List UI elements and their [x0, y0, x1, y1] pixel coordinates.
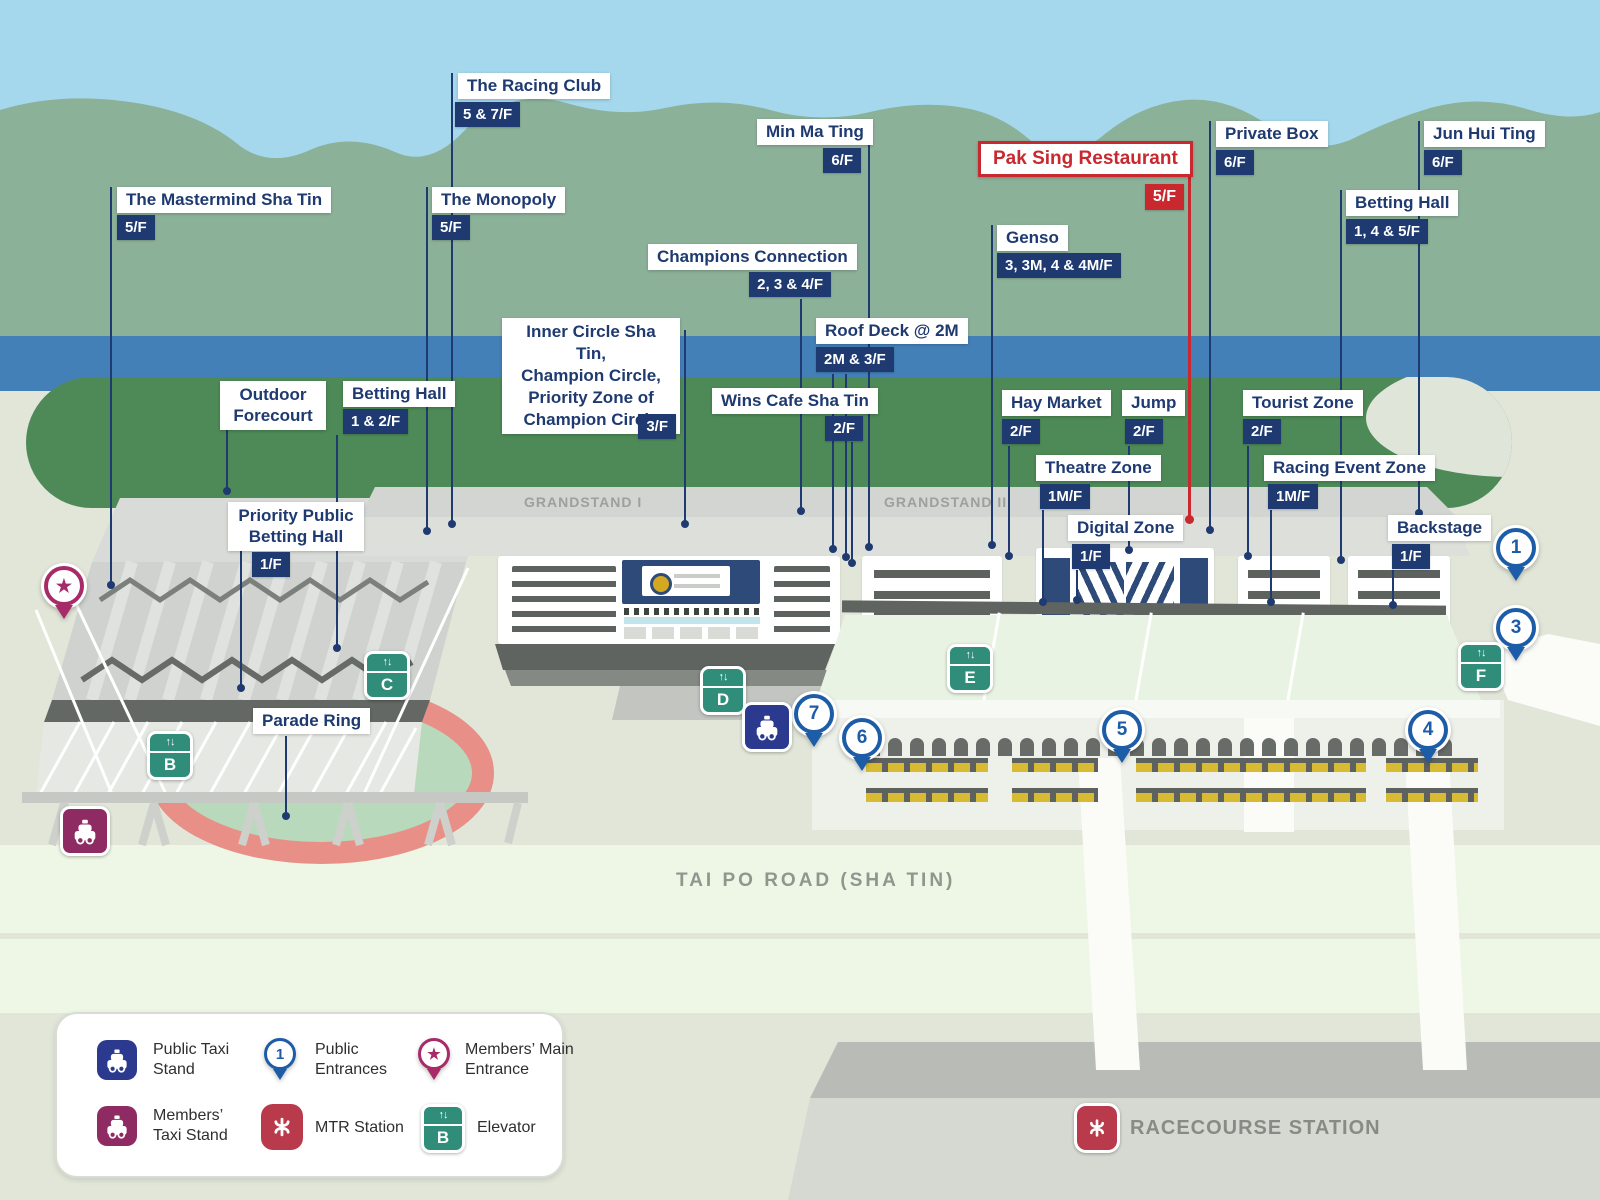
legend-item-label: Members’ Taxi Stand [153, 1106, 245, 1146]
elevator-arrows-icon: ↑↓ [150, 734, 190, 753]
entrance-pin-6: 6 [842, 718, 882, 771]
callout-jump: Jump [1122, 390, 1185, 416]
floor-tag-betting-hall-east: 1, 4 & 5/F [1346, 219, 1428, 244]
leader-monopoly [426, 187, 428, 531]
legend-panel: Public Taxi Stand 1 Public Entrances ★ M… [55, 1012, 564, 1178]
callout-jun-hui-ting: Jun Hui Ting [1424, 121, 1545, 147]
grandstand1-terrace2 [505, 670, 835, 686]
barrier [1012, 758, 1098, 772]
star-icon: ★ [44, 566, 84, 606]
floor-tag-hay-market: 2/F [1002, 419, 1040, 444]
public-taxi-stand-icon [742, 702, 792, 752]
callout-tourist-zone: Tourist Zone [1243, 390, 1363, 416]
callout-roof-deck: Roof Deck @ 2M [816, 318, 968, 344]
members-taxi-stand-icon [60, 806, 110, 856]
elevator-arrows-icon: ↑↓ [703, 669, 743, 688]
elevator-e: ↑↓ E [947, 644, 993, 693]
leader-outdoor-forecourt [226, 427, 228, 491]
elevator-arrows-icon: ↑↓ [1461, 645, 1501, 664]
escalator-motif [774, 566, 830, 636]
turnstile-row [866, 716, 1478, 756]
leader-racing-event-zone [1270, 510, 1272, 602]
leader-pak-sing [1188, 141, 1191, 520]
facade-windows [624, 627, 760, 639]
members-main-entrance-pin-icon: ★ [417, 1038, 451, 1080]
screen-panel [642, 566, 730, 596]
leader-priority-public [240, 548, 242, 688]
leader-wins-cafe [851, 442, 853, 563]
grandstand1-facade [498, 556, 840, 644]
callout-racing-club: The Racing Club [458, 73, 610, 99]
floor-tag-jump: 2/F [1125, 419, 1163, 444]
callout-min-ma-ting: Min Ma Ting [757, 119, 873, 145]
floor-tag-digital-zone: 1/F [1072, 544, 1110, 569]
grandstand1-apron [330, 517, 910, 556]
leader-mastermind [110, 187, 112, 585]
callout-digital-zone: Digital Zone [1068, 515, 1183, 541]
grandstand1-label: GRANDSTAND I [524, 494, 642, 510]
facade-blue-strip [624, 617, 760, 624]
floor-tag-racing-event-zone: 1M/F [1268, 484, 1318, 509]
floor-tag-monopoly: 5/F [432, 215, 470, 240]
floor-tag-private-box: 6/F [1216, 150, 1254, 175]
floor-tag-champions-connection: 2, 3 & 4/F [749, 272, 831, 297]
callout-theatre-zone: Theatre Zone [1036, 455, 1161, 481]
leader-racing-club [451, 73, 453, 524]
floor-tag-backstage: 1/F [1392, 544, 1430, 569]
leader-backstage [1392, 570, 1394, 605]
floor-tag-racing-club: 5 & 7/F [455, 102, 520, 127]
escalator-motif [512, 566, 616, 636]
legend-item-label: Public Entrances [315, 1040, 411, 1080]
elevator-d: ↑↓ D [700, 666, 746, 715]
road-name: TAI PO ROAD (SHA TIN) [676, 870, 955, 892]
floor-tag-roof-deck: 2M & 3/F [816, 347, 894, 372]
elevator-c: ↑↓ C [364, 651, 410, 700]
public-taxi-icon [97, 1040, 137, 1080]
entrance-pin-7: 7 [794, 694, 834, 747]
elevator-arrows-icon: ↑↓ [424, 1107, 462, 1126]
mtr-station-icon [1074, 1103, 1120, 1153]
station-name: RACECOURSE STATION [1130, 1117, 1381, 1140]
elevator-icon: ↑↓ B [421, 1104, 465, 1153]
floor-tag-betting-hall-west: 1 & 2/F [343, 409, 408, 434]
leader-hay-market [1008, 446, 1010, 556]
floor-tag-genso: 3, 3M, 4 & 4M/F [997, 253, 1121, 278]
elevator-arrows-icon: ↑↓ [367, 654, 407, 673]
public-entrance-pin-icon: 1 [263, 1038, 297, 1080]
callout-mastermind: The Mastermind Sha Tin [117, 187, 331, 213]
callout-racing-event-zone: Racing Event Zone [1264, 455, 1435, 481]
elevator-arrows-icon: ↑↓ [950, 647, 990, 666]
station-building [788, 1098, 1600, 1200]
mtr-icon [261, 1104, 303, 1150]
barrier [1012, 788, 1098, 802]
callout-hay-market: Hay Market [1002, 390, 1111, 416]
club-logo-icon [650, 573, 672, 595]
legend-item-label: Public Taxi Stand [153, 1040, 245, 1080]
racecourse-map: TAI PO ROAD (SHA TIN) RACECOURSE STATION [0, 0, 1600, 1200]
entrance-pin-4: 4 [1408, 710, 1448, 763]
barrier [1136, 788, 1366, 802]
floor-tag-jun-hui-ting: 6/F [1424, 150, 1462, 175]
big-screen [622, 560, 760, 604]
elevator-b: ↑↓ B [147, 731, 193, 780]
floor-tag-mastermind: 5/F [117, 215, 155, 240]
floor-tag-wins-cafe: 2/F [825, 416, 863, 441]
floor-tag-min-ma-ting: 6/F [823, 148, 861, 173]
callout-pak-sing: Pak Sing Restaurant [978, 141, 1193, 177]
leader-genso [991, 225, 993, 545]
callout-betting-hall-east: Betting Hall [1346, 190, 1458, 216]
barrier [866, 758, 988, 772]
grandstand1-terrace [495, 644, 835, 670]
facade-dots [624, 608, 760, 615]
barrier [866, 788, 988, 802]
legend-item-label: Members’ Main Entrance [465, 1040, 580, 1080]
callout-outdoor-forecourt: Outdoor Forecourt [220, 381, 326, 430]
road-lower [0, 939, 1600, 1013]
callout-genso: Genso [997, 225, 1068, 251]
leader-private-box [1209, 121, 1211, 530]
leader-parade-ring [285, 736, 287, 816]
barrier [1136, 758, 1366, 772]
callout-private-box: Private Box [1216, 121, 1328, 147]
legend-item-label: Elevator [477, 1118, 567, 1138]
station-roof [810, 1042, 1600, 1098]
floor-tag-pak-sing: 5/F [1145, 184, 1184, 210]
floor-tag-theatre-zone: 1M/F [1040, 484, 1090, 509]
callout-champions-connection: Champions Connection [648, 244, 857, 270]
leader-betting-hall-east [1340, 190, 1342, 560]
floor-tag-priority-public: 1/F [252, 552, 290, 577]
leader-tourist-zone [1247, 446, 1249, 556]
callout-monopoly: The Monopoly [432, 187, 565, 213]
floor-tag-tourist-zone: 2/F [1243, 419, 1281, 444]
leader-digital-zone [1076, 570, 1078, 600]
members-taxi-icon [97, 1106, 137, 1146]
callout-wins-cafe: Wins Cafe Sha Tin [712, 388, 878, 414]
legend-item-label: MTR Station [315, 1118, 425, 1138]
floor-tag-inner-circle: 3/F [638, 414, 676, 439]
callout-backstage: Backstage [1388, 515, 1491, 541]
callout-priority-public: Priority Public Betting Hall [228, 502, 364, 551]
members-main-entrance-pin: ★ [44, 566, 84, 619]
elevator-f: ↑↓ F [1458, 642, 1504, 691]
leader-inner-circle [684, 330, 686, 524]
entrance-pin-1: 1 [1496, 528, 1536, 581]
leader-theatre-zone [1042, 510, 1044, 602]
grandstand2-label: GRANDSTAND II [884, 494, 1007, 510]
barrier [1386, 788, 1478, 802]
callout-parade-ring: Parade Ring [253, 708, 370, 734]
callout-betting-hall-west: Betting Hall [343, 381, 455, 407]
star-icon: ★ [418, 1038, 450, 1070]
entrance-pin-5: 5 [1102, 710, 1142, 763]
